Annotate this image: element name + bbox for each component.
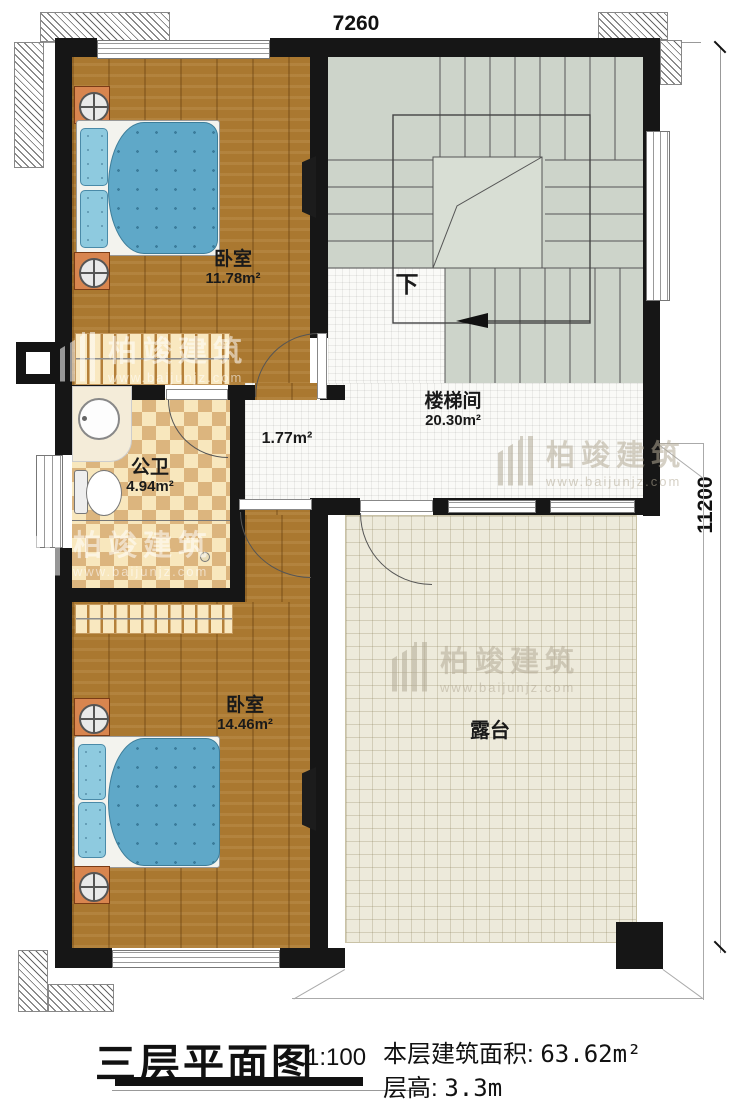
wall-segment (270, 38, 660, 57)
room-name: 卧室 (180, 696, 310, 717)
door-leaf (239, 499, 312, 510)
door-leaf (166, 389, 228, 400)
lamp-icon (79, 258, 109, 288)
lamp-icon (79, 704, 109, 734)
window-symbol (550, 500, 635, 513)
title-underline-bar (115, 1077, 363, 1086)
hatch-mark (18, 950, 48, 1012)
right-dimension-line (720, 48, 721, 953)
window-symbol (36, 455, 63, 548)
parapet-diagonal (662, 969, 702, 999)
floor-plan: 7260 11200 (0, 0, 750, 1114)
parapet-diagonal (293, 969, 345, 999)
room-area: 20.30m² (393, 413, 513, 430)
room-name: 露台 (455, 720, 525, 742)
nightstand-symbol (74, 252, 110, 290)
floor-area-label: 本层建筑面积: (383, 1041, 534, 1068)
window-symbol (97, 40, 270, 59)
title-underline-thin (112, 1090, 422, 1091)
room-label-hallway: 1.77m² (250, 430, 324, 448)
floor-area-line: 本层建筑面积: 63.62m² (383, 1034, 642, 1069)
tv-symbol (302, 156, 316, 218)
wardrobe-symbol (75, 604, 233, 634)
wall-segment (55, 548, 72, 968)
nightstand-symbol (74, 86, 110, 124)
nightstand-symbol (74, 698, 110, 736)
wall-segment (280, 948, 345, 968)
lamp-icon (79, 92, 109, 122)
plan-scale: 1:100 (306, 1044, 366, 1072)
wall-segment (55, 948, 112, 968)
hatch-mark (660, 40, 682, 85)
column-symbol (616, 922, 663, 969)
wall-segment (230, 385, 245, 602)
hatch-mark (48, 984, 114, 1012)
wall-segment (55, 588, 245, 602)
duct-shaft-symbol (16, 342, 60, 384)
tv-symbol (302, 767, 316, 831)
nightstand-symbol (74, 866, 110, 904)
room-name: 卧室 (168, 250, 298, 271)
pillow (78, 802, 106, 858)
door-leaf (317, 333, 327, 399)
room-label-bedroom-bottom: 卧室 14.46m² (180, 696, 310, 733)
floor-height-value: 3.3m (444, 1074, 502, 1102)
floor-area-value: 63.62m² (540, 1040, 641, 1068)
parapet-line (660, 443, 703, 444)
room-area: 11.78m² (168, 271, 298, 288)
room-label-terrace: 露台 (455, 720, 525, 742)
room-area: 14.46m² (180, 717, 310, 734)
floor-height-label: 层高: (383, 1075, 438, 1102)
stair-direction-label: 下 (390, 272, 424, 297)
room-area: 4.94m² (110, 479, 190, 496)
lamp-icon (79, 872, 109, 902)
window-symbol (112, 950, 280, 968)
bed-quilt (108, 122, 218, 254)
stair-symbol (328, 57, 643, 383)
room-label-bedroom-top: 卧室 11.78m² (168, 250, 298, 287)
pillow (80, 128, 108, 186)
bed-quilt (108, 738, 220, 866)
room-label-bathroom: 公卫 4.94m² (110, 458, 190, 495)
wardrobe-symbol (75, 333, 230, 385)
pillow (78, 744, 106, 800)
floor-height-line: 层高: 3.3m (383, 1068, 502, 1103)
hatch-mark (598, 12, 668, 40)
room-name: 公卫 (110, 458, 190, 479)
room-area: 1.77m² (250, 430, 324, 448)
hatch-mark (14, 42, 44, 168)
door-leaf (360, 500, 433, 512)
room-name: 楼梯间 (393, 392, 513, 413)
parapet-line (703, 443, 704, 1000)
window-symbol (646, 131, 670, 301)
wall-segment (310, 498, 328, 948)
window-symbol (448, 500, 536, 513)
faucet-dot (82, 416, 87, 421)
pillow (80, 190, 108, 248)
top-dimension-label: 7260 (320, 12, 392, 36)
parapet-line (292, 998, 704, 999)
drain-symbol (200, 552, 210, 562)
shower-divider (72, 520, 230, 521)
room-label-stairwell: 楼梯间 20.30m² (393, 392, 513, 429)
